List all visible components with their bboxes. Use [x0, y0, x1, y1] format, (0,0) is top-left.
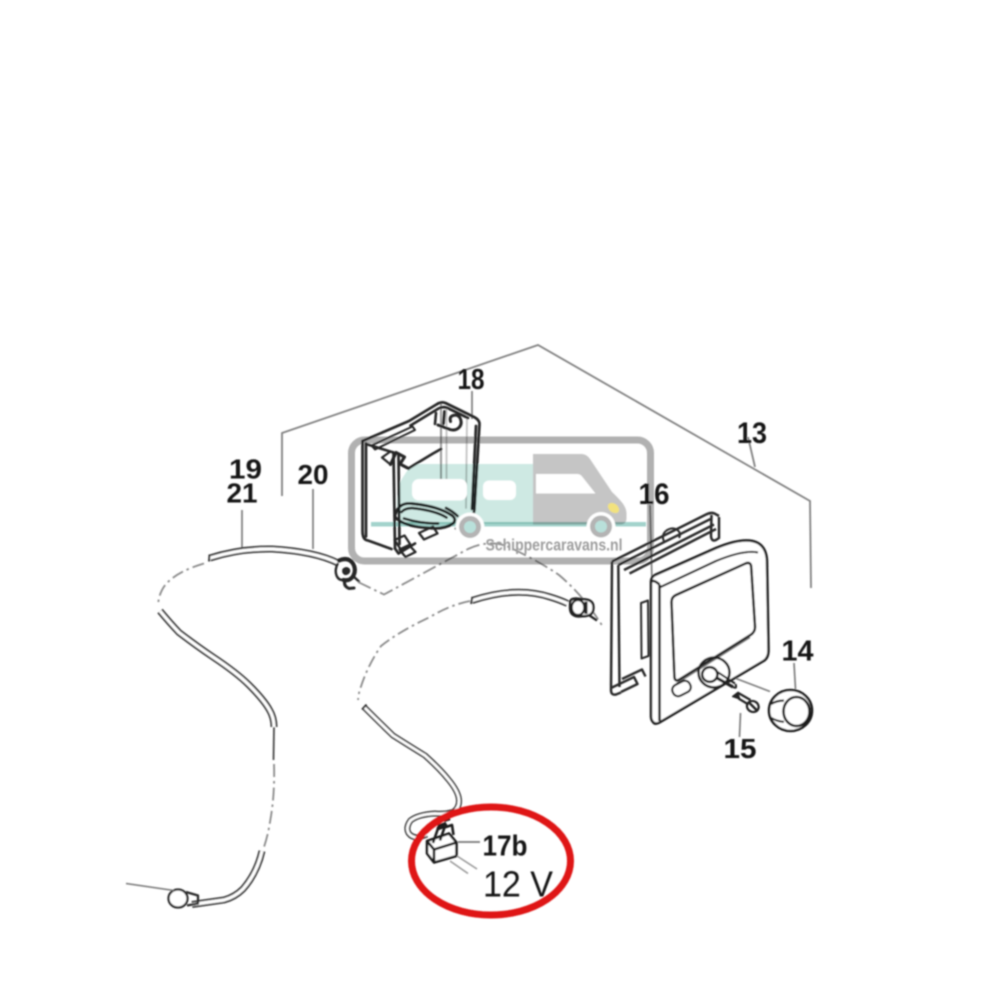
svg-text:18: 18: [458, 364, 485, 396]
svg-text:13: 13: [737, 417, 767, 450]
svg-text:Schippercaravans.nl: Schippercaravans.nl: [486, 536, 623, 555]
svg-text:17b: 17b: [483, 831, 528, 863]
svg-text:12 V: 12 V: [483, 864, 553, 905]
svg-text:21: 21: [227, 478, 258, 509]
svg-text:14: 14: [782, 636, 814, 668]
svg-text:20: 20: [298, 459, 329, 490]
svg-text:15: 15: [724, 733, 757, 764]
